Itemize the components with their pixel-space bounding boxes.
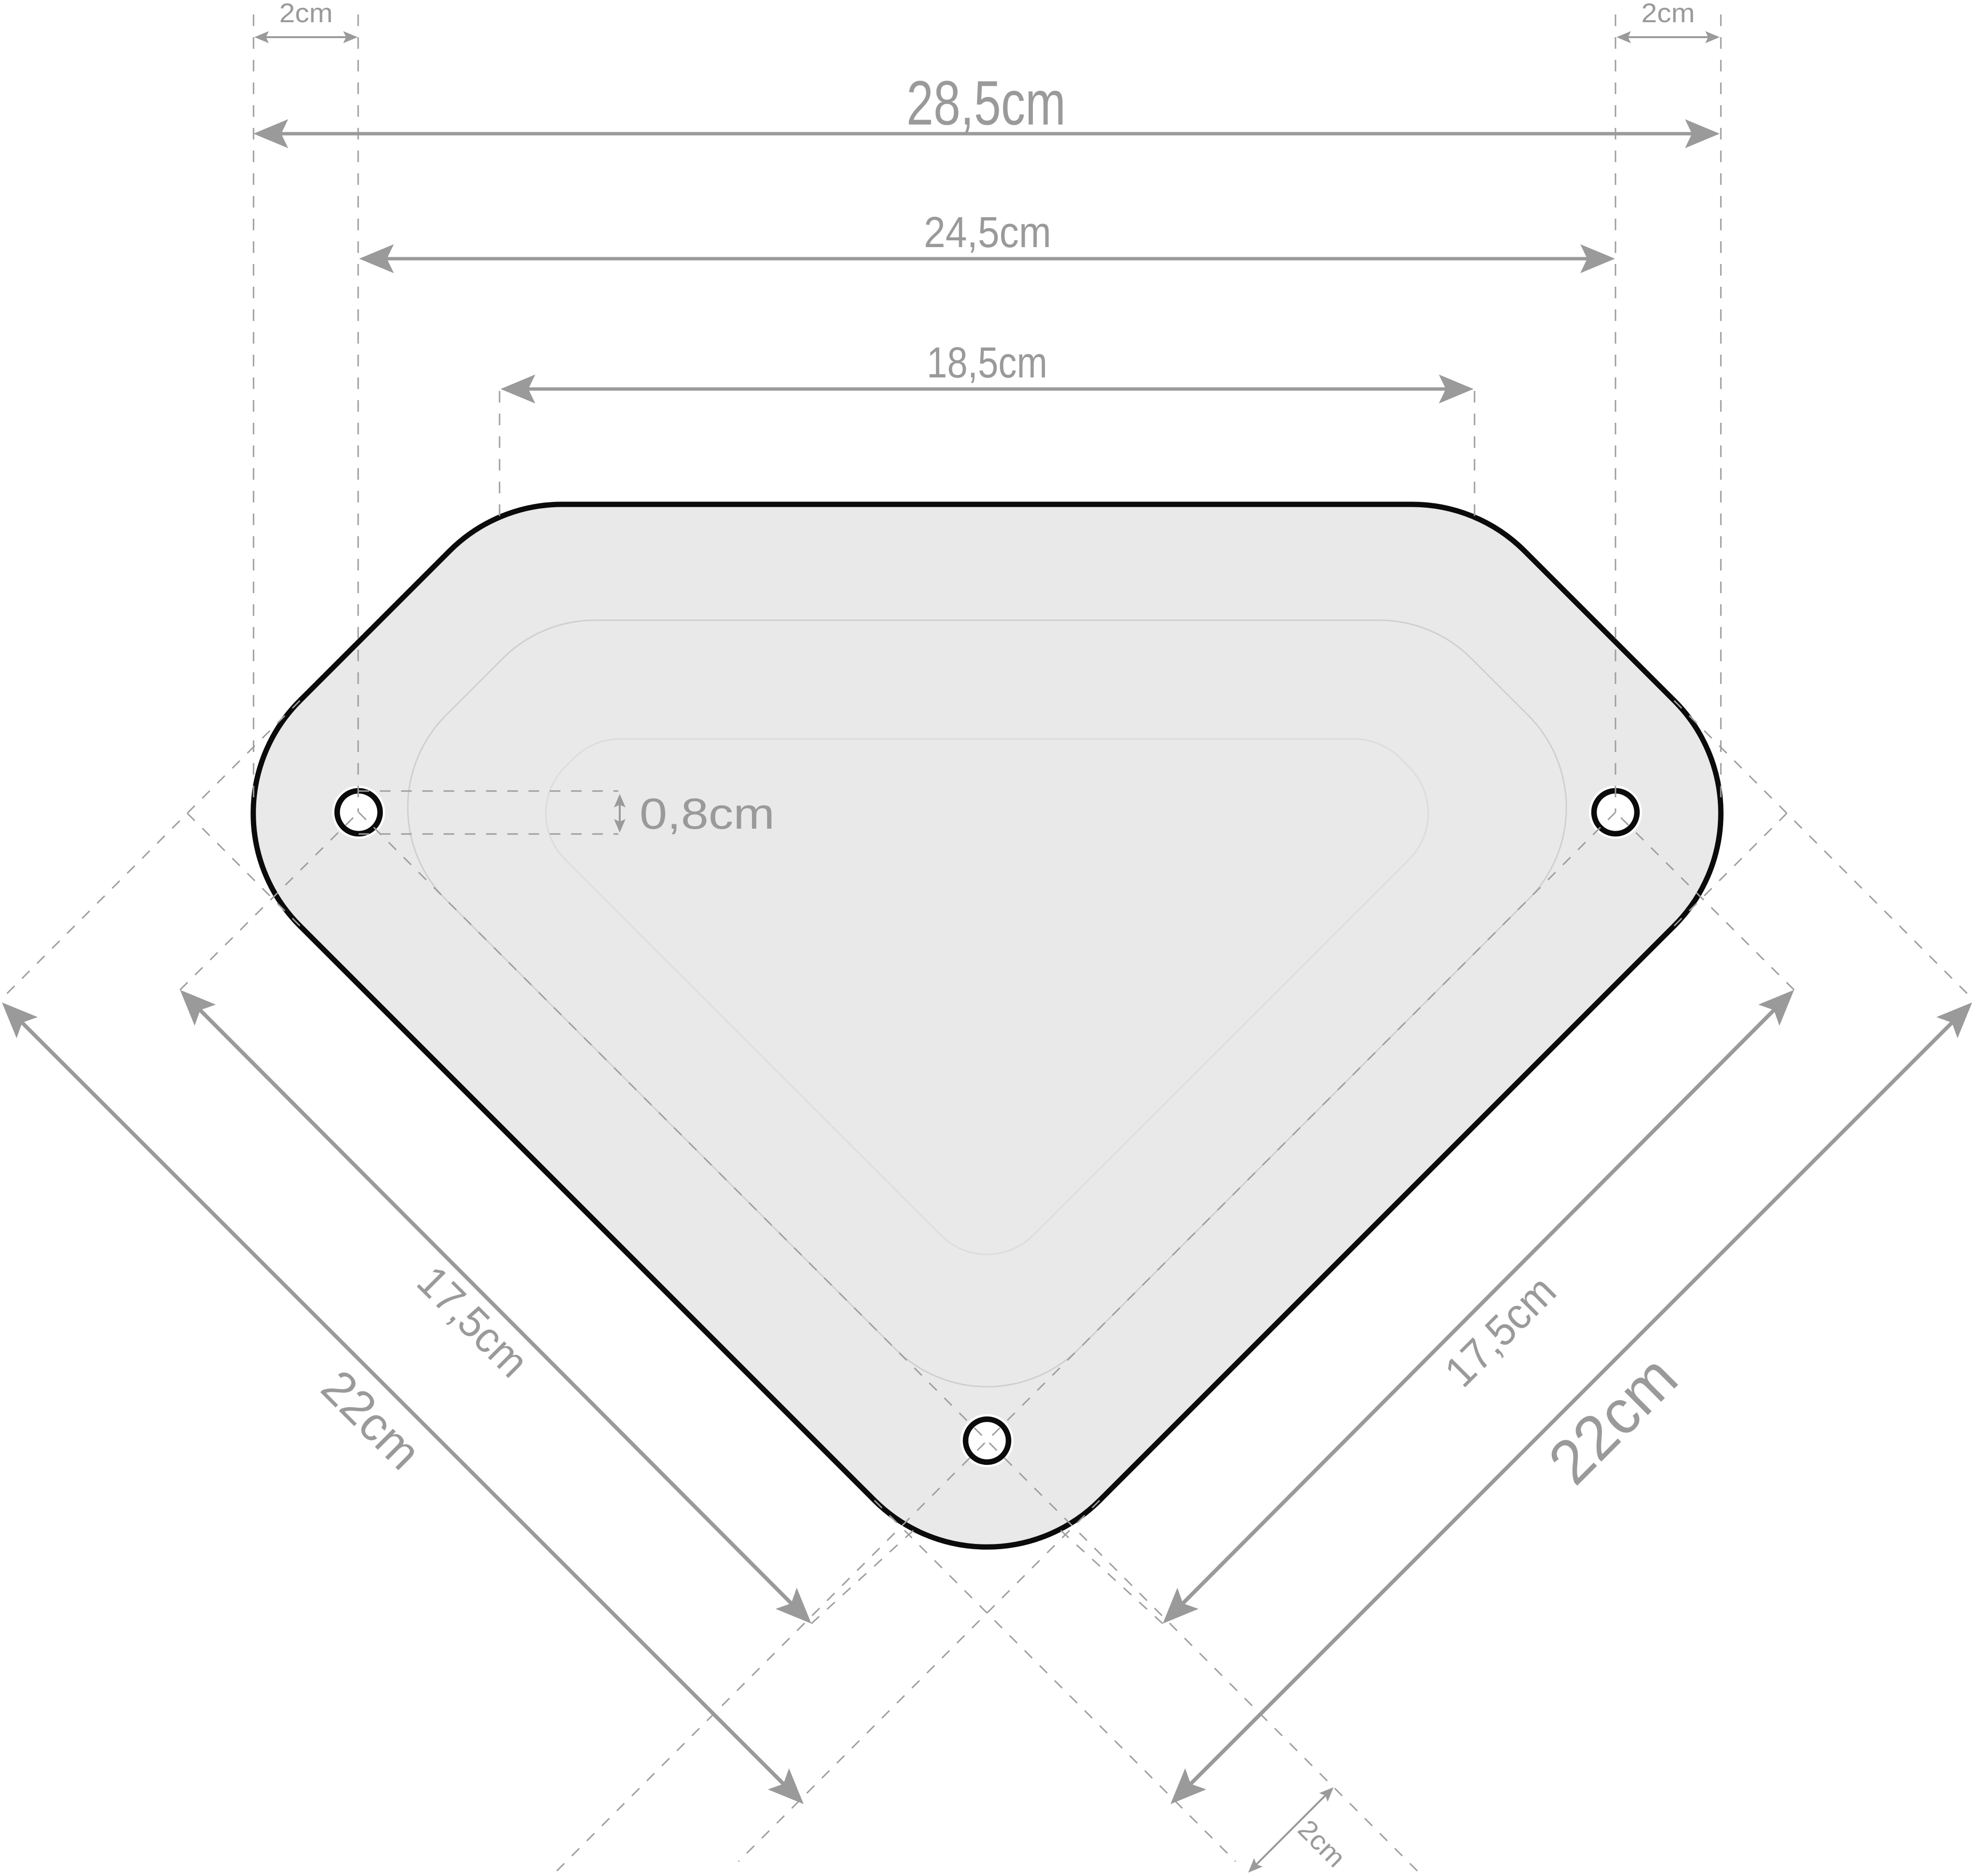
svg-text:24,5cm: 24,5cm (924, 208, 1051, 257)
svg-text:28,5cm: 28,5cm (906, 68, 1066, 138)
svg-text:2cm: 2cm (279, 0, 333, 28)
svg-text:0,8cm: 0,8cm (640, 790, 775, 838)
svg-text:2cm: 2cm (1642, 0, 1695, 28)
svg-text:18,5cm: 18,5cm (927, 339, 1047, 387)
